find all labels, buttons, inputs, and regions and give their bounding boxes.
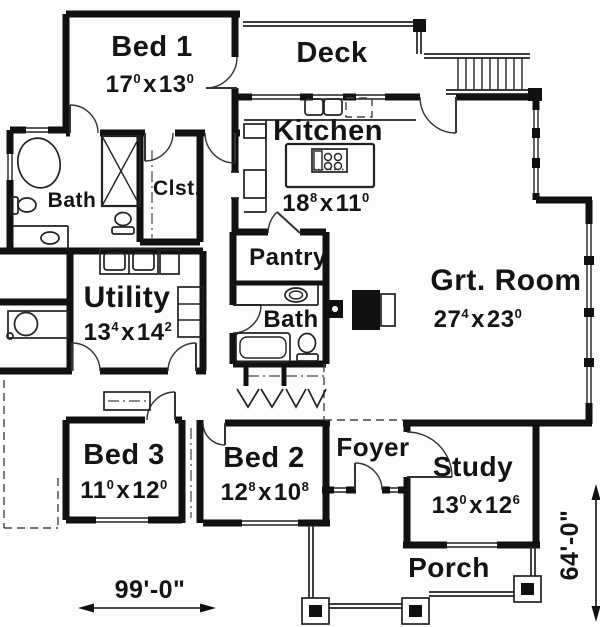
cased-opening-jambs: [231, 172, 239, 198]
dim-bed1: 170x130: [106, 71, 195, 98]
label-deck: Deck: [296, 37, 368, 69]
bathtub-icon: [236, 333, 290, 362]
height-dimension-text: 64'-0": [556, 510, 584, 581]
toilet-icon: [297, 334, 318, 362]
ceiling-break-lines: [324, 364, 403, 420]
label-utility: Utility: [84, 281, 171, 314]
dim-kitchen: 188x110: [282, 190, 369, 217]
garage-sink-icon: [7, 311, 68, 339]
vanity-sink-icon: [12, 226, 68, 250]
porch-posts: [302, 576, 541, 624]
label-porch: Porch: [408, 552, 490, 583]
label-study: Study: [433, 451, 513, 482]
label-bath-master: Bath: [48, 189, 97, 212]
label-bed2: Bed 2: [223, 442, 304, 474]
width-arrow-right: [200, 604, 216, 613]
dim-bed3: 110x120: [80, 477, 167, 504]
toilet-icon: [112, 213, 134, 235]
dim-study: 130x126: [432, 492, 521, 519]
garage-outline-dashed: [4, 380, 58, 528]
overall-height-dimension: 64'-0": [556, 484, 600, 622]
height-arrow-bottom: [592, 606, 600, 622]
fireplace-icon: [327, 290, 395, 330]
width-dimension-text: 99'-0": [115, 576, 186, 604]
kitchen-island: [286, 144, 374, 187]
label-bed3: Bed 3: [83, 439, 164, 471]
vanity-sink-icon: [233, 285, 318, 305]
double-sink-icon: [305, 99, 342, 115]
floor-plan: Bed 1 Deck Kitchen Bath Clst. Pantry Bat…: [0, 0, 600, 627]
dim-bed2: 128x108: [221, 479, 310, 506]
label-pantry: Pantry: [249, 244, 327, 271]
overall-width-dimension: 99'-0": [78, 576, 216, 613]
wall-oven-icon: [244, 124, 266, 138]
utility-cabinet-icon: [178, 287, 203, 337]
toilet-icon: [11, 197, 36, 214]
bathtub-icon: [13, 134, 64, 192]
shower-icon: [102, 136, 140, 206]
dim-utility: 134x142: [84, 319, 173, 346]
window-mullion-blocks: [532, 128, 594, 367]
label-great-room: Grt. Room: [430, 264, 581, 297]
deck-stair-treads: [458, 58, 522, 90]
height-arrow-top: [592, 484, 600, 500]
fridge-icon: [244, 170, 266, 198]
dim-great-room: 274x230: [434, 306, 523, 333]
label-foyer: Foyer: [336, 432, 409, 462]
width-arrow-left: [78, 604, 94, 613]
label-bath-hall: Bath: [263, 306, 318, 333]
label-closet: Clst.: [153, 177, 201, 200]
label-bed1: Bed 1: [111, 31, 192, 63]
floor-plan-page: Bed 1 Deck Kitchen Bath Clst. Pantry Bat…: [0, 0, 600, 627]
label-kitchen: Kitchen: [273, 115, 383, 147]
bifold-closet-doors: [237, 389, 326, 407]
